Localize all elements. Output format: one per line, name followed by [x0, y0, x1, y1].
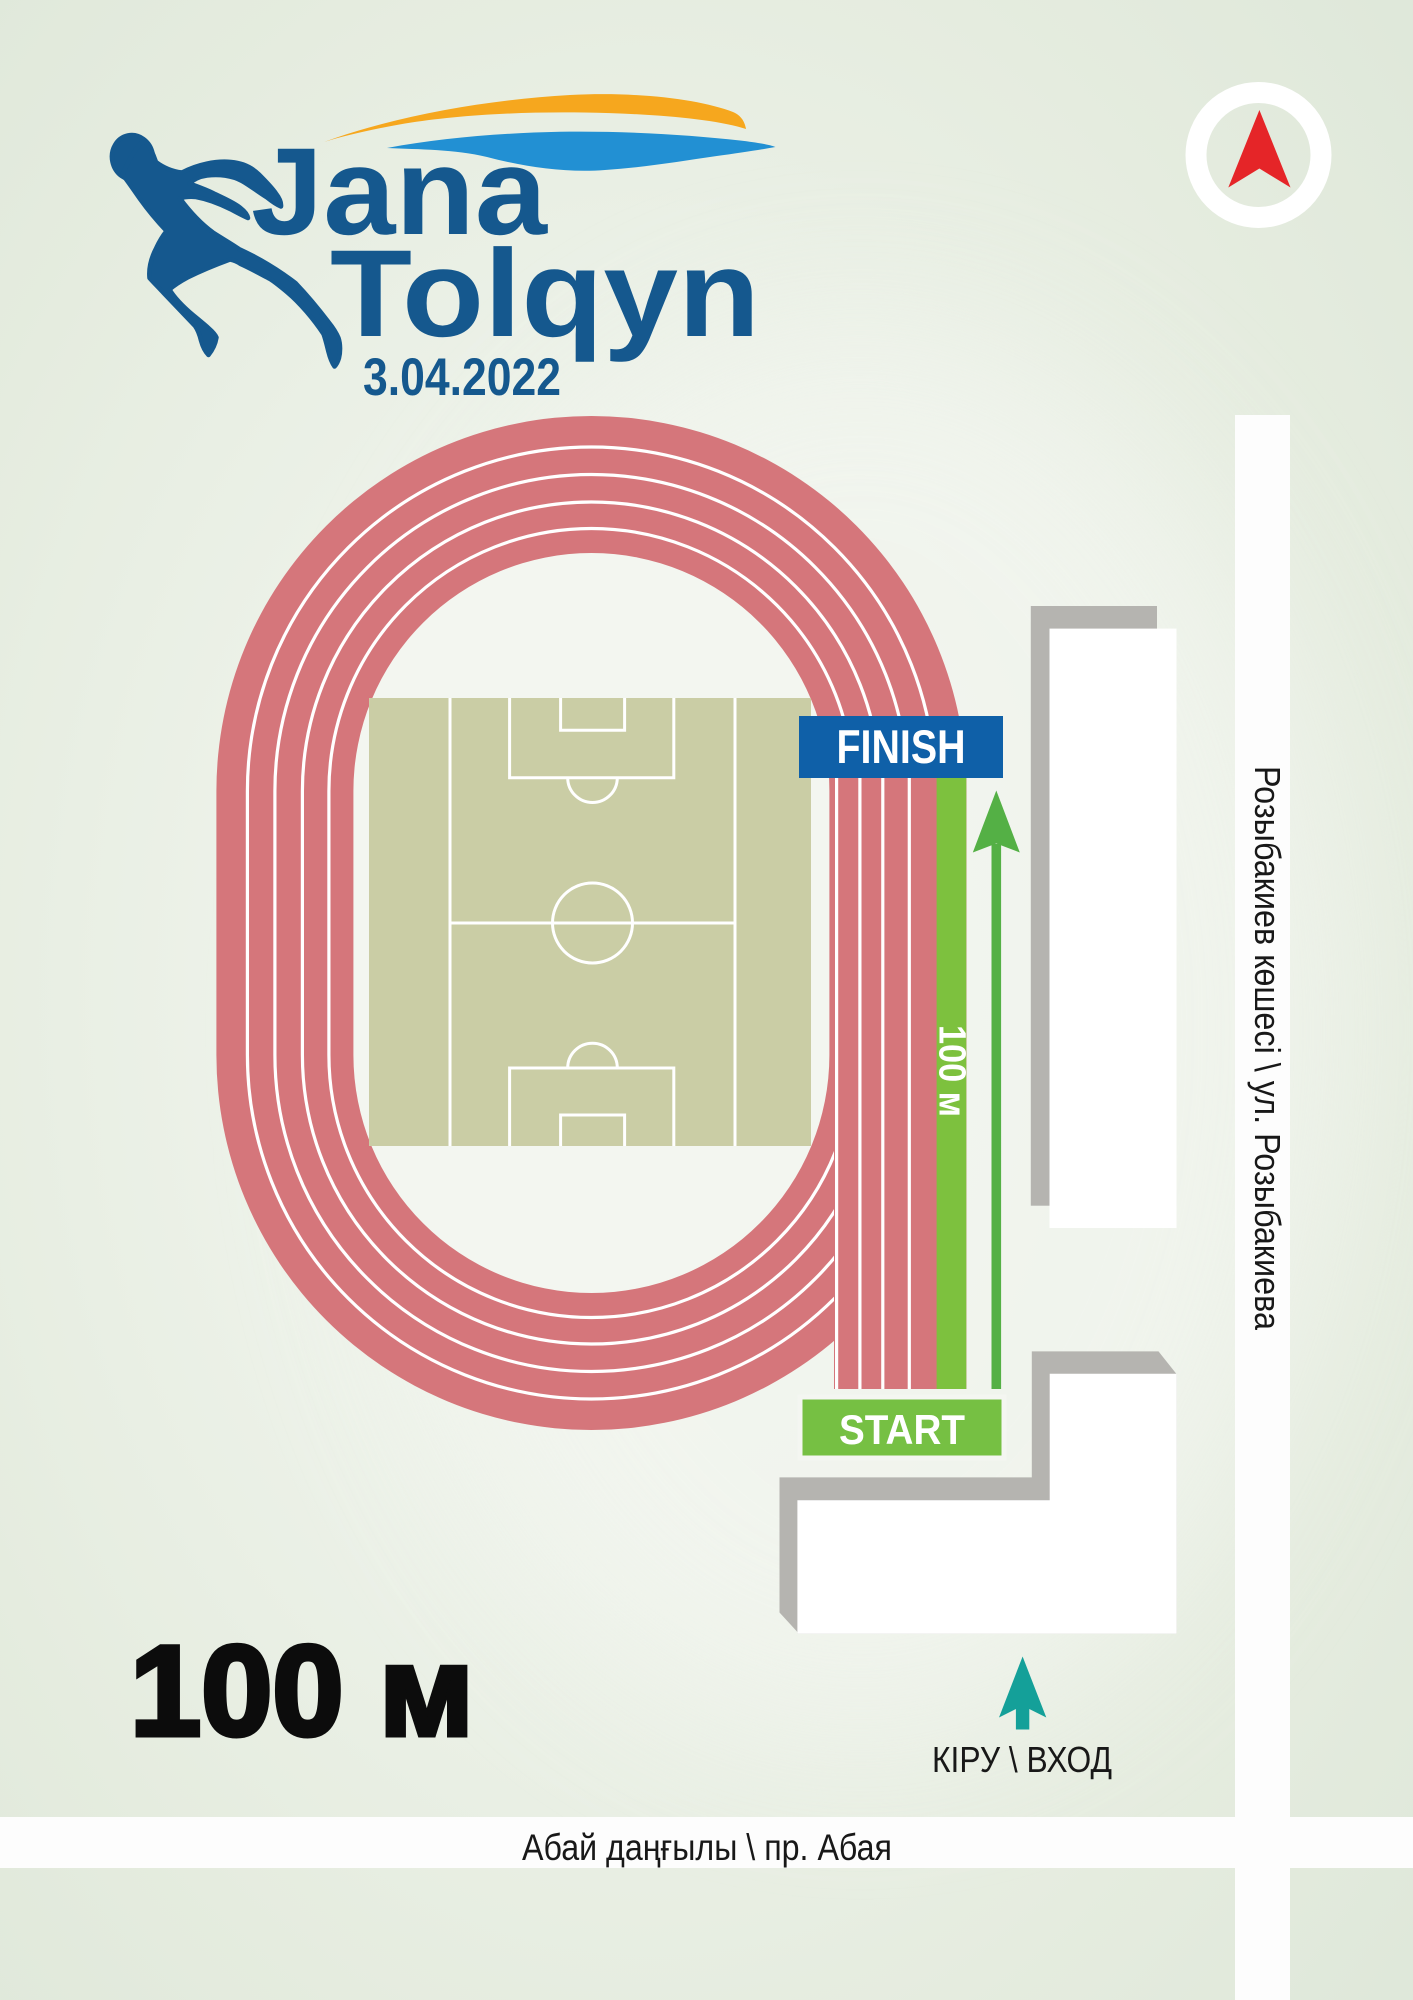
svg-text:FINISH: FINISH: [837, 720, 966, 773]
svg-text:Розыбакиев көшесі \ ул. Розыба: Розыбакиев көшесі \ ул. Розыбакиева: [1247, 766, 1288, 1331]
svg-text:КІРУ \ ВХОД: КІРУ \ ВХОД: [932, 1739, 1112, 1780]
svg-text:Tolqyn: Tolqyn: [330, 225, 760, 363]
svg-text:START: START: [839, 1406, 965, 1453]
svg-text:100 м: 100 м: [130, 1620, 474, 1763]
svg-text:Абай даңғылы \ пр. Абая: Абай даңғылы \ пр. Абая: [522, 1827, 892, 1868]
svg-text:3.04.2022: 3.04.2022: [363, 348, 561, 407]
svg-text:100 м: 100 м: [931, 1025, 973, 1117]
